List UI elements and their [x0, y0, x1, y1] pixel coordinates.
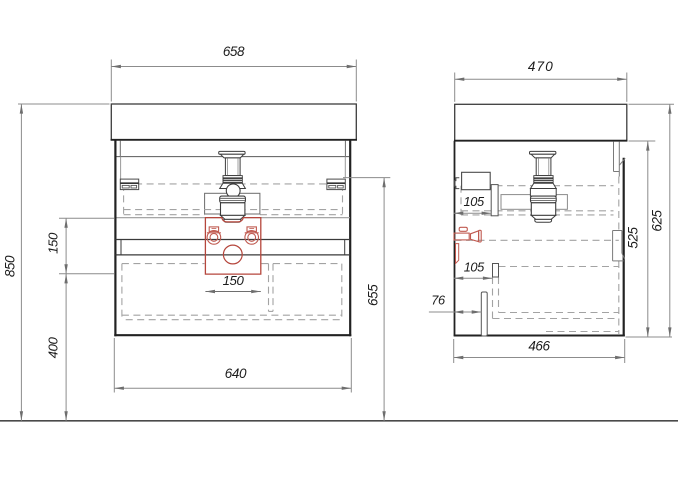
svg-text:525: 525: [626, 226, 641, 248]
svg-text:105: 105: [464, 194, 485, 209]
svg-text:105: 105: [464, 260, 485, 275]
svg-text:466: 466: [528, 339, 550, 354]
svg-text:470: 470: [528, 59, 554, 74]
svg-text:625: 625: [650, 209, 665, 231]
svg-text:850: 850: [3, 255, 18, 277]
svg-text:655: 655: [366, 284, 381, 306]
svg-text:400: 400: [46, 337, 61, 359]
svg-text:150: 150: [46, 232, 61, 254]
svg-text:640: 640: [225, 366, 247, 381]
svg-text:150: 150: [223, 273, 245, 288]
svg-text:658: 658: [223, 44, 245, 59]
svg-text:76: 76: [431, 293, 446, 308]
